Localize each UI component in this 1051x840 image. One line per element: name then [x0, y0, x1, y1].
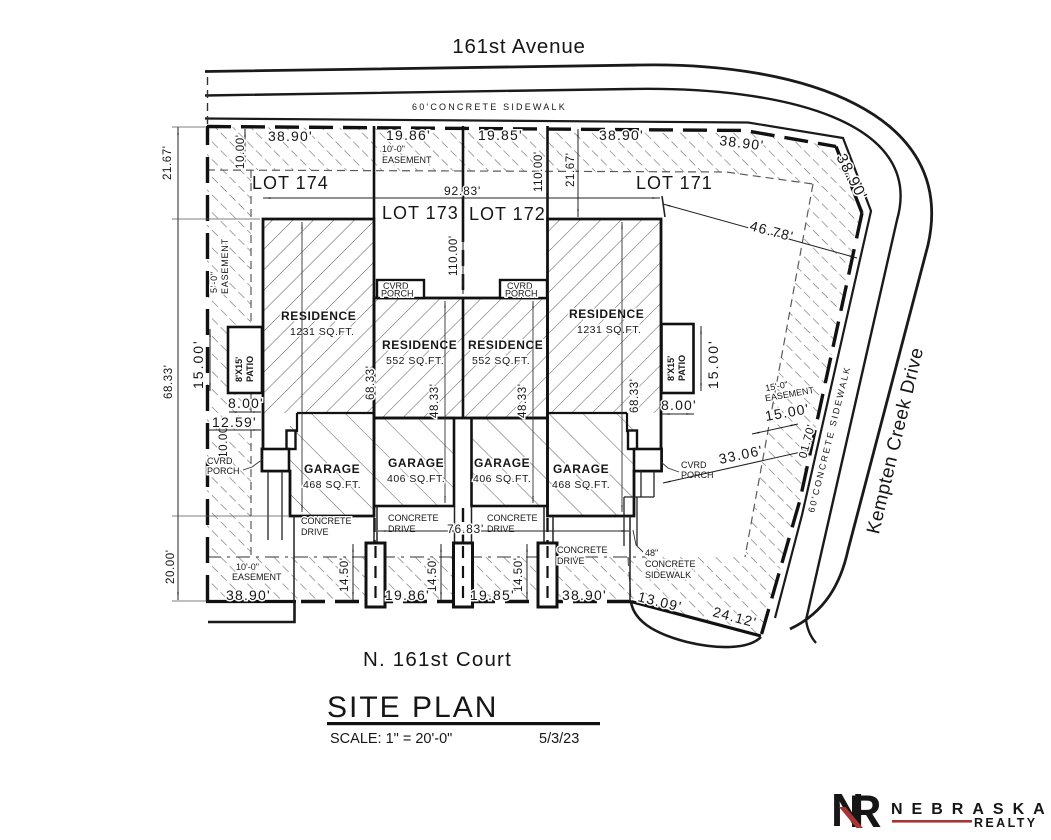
svg-text:PORCH: PORCH [381, 289, 414, 299]
svg-text:48.33': 48.33' [429, 383, 441, 418]
svg-text:CVRD: CVRD [681, 460, 707, 470]
svg-text:5'-0": 5'-0" [209, 271, 219, 293]
svg-text:LOT 174: LOT 174 [252, 173, 329, 193]
svg-text:552 SQ.FT.: 552 SQ.FT. [386, 355, 444, 367]
svg-text:468 SQ.FT.: 468 SQ.FT. [303, 479, 361, 491]
svg-text:R: R [849, 786, 882, 837]
svg-text:19.85': 19.85' [470, 587, 515, 603]
svg-text:SITE PLAN: SITE PLAN [327, 691, 498, 724]
svg-text:DRIVE: DRIVE [388, 524, 416, 534]
svg-text:92.83': 92.83' [444, 184, 481, 198]
svg-text:48.33': 48.33' [517, 383, 529, 418]
svg-text:10'-0": 10'-0" [236, 562, 259, 572]
svg-text:RESIDENCE: RESIDENCE [281, 309, 356, 323]
svg-text:38.90': 38.90' [226, 587, 271, 603]
svg-text:PATIO: PATIO [677, 355, 687, 381]
svg-text:1231 SQ.FT.: 1231 SQ.FT. [577, 324, 641, 336]
svg-text:REALTY: REALTY [974, 816, 1037, 830]
svg-text:EASEMENT: EASEMENT [232, 572, 282, 582]
svg-text:552 SQ.FT.: 552 SQ.FT. [472, 355, 530, 367]
svg-text:CONCRETE: CONCRETE [301, 516, 352, 526]
svg-text:GARAGE: GARAGE [304, 462, 360, 476]
svg-text:38.90': 38.90' [599, 127, 644, 143]
svg-text:10'-0": 10'-0" [382, 144, 405, 154]
svg-text:SIDEWALK: SIDEWALK [645, 570, 691, 580]
svg-text:19.85': 19.85' [478, 127, 523, 143]
svg-text:CVRD: CVRD [207, 456, 233, 466]
svg-text:N. 161st Court: N. 161st Court [363, 648, 512, 671]
svg-text:EASEMENT: EASEMENT [382, 155, 432, 165]
svg-text:GARAGE: GARAGE [553, 462, 609, 476]
svg-text:110.00': 110.00' [533, 151, 545, 192]
svg-text:21.67': 21.67' [565, 152, 577, 187]
svg-text:8.00': 8.00' [228, 395, 264, 411]
svg-text:15.00': 15.00' [705, 339, 721, 389]
svg-text:48": 48" [645, 548, 658, 558]
svg-text:68.33': 68.33' [629, 378, 641, 413]
svg-text:DRIVE: DRIVE [487, 524, 515, 534]
svg-text:38.90': 38.90' [562, 587, 607, 603]
svg-text:5/3/23: 5/3/23 [539, 731, 579, 747]
svg-text:RESIDENCE: RESIDENCE [468, 338, 543, 352]
svg-text:19.86': 19.86' [385, 587, 430, 603]
svg-text:10.00': 10.00' [235, 134, 247, 169]
svg-text:DRIVE: DRIVE [301, 527, 329, 537]
svg-text:60'CONCRETE SIDEWALK: 60'CONCRETE SIDEWALK [412, 102, 567, 112]
svg-text:RESIDENCE: RESIDENCE [382, 338, 457, 352]
svg-text:406 SQ.FT.: 406 SQ.FT. [387, 473, 445, 485]
svg-text:RESIDENCE: RESIDENCE [569, 307, 644, 321]
svg-text:15.00': 15.00' [190, 339, 206, 389]
svg-text:110.00': 110.00' [448, 235, 460, 276]
svg-text:8.00': 8.00' [661, 397, 697, 413]
svg-text:EASEMENT: EASEMENT [220, 238, 230, 294]
svg-text:CONCRETE: CONCRETE [487, 513, 538, 523]
svg-text:8'X15': 8'X15' [666, 356, 676, 381]
svg-text:68.33': 68.33' [365, 365, 377, 400]
svg-text:406 SQ.FT.: 406 SQ.FT. [473, 473, 531, 485]
svg-text:161st Avenue: 161st Avenue [452, 35, 585, 58]
svg-text:GARAGE: GARAGE [474, 456, 530, 470]
svg-text:PORCH: PORCH [207, 466, 240, 476]
svg-text:LOT 171: LOT 171 [636, 173, 713, 193]
svg-text:SCALE: 1" = 20'-0": SCALE: 1" = 20'-0" [330, 731, 452, 747]
svg-text:38.90': 38.90' [268, 128, 313, 144]
svg-text:68.33': 68.33' [163, 364, 175, 399]
svg-text:1231 SQ.FT.: 1231 SQ.FT. [290, 326, 354, 338]
svg-text:20.00': 20.00' [165, 549, 177, 584]
svg-text:12.59': 12.59' [212, 414, 257, 430]
svg-text:DRIVE: DRIVE [557, 556, 585, 566]
svg-text:14.50': 14.50' [339, 557, 351, 592]
svg-text:468 SQ.FT.: 468 SQ.FT. [552, 479, 610, 491]
svg-text:CONCRETE: CONCRETE [645, 559, 696, 569]
svg-text:CONCRETE: CONCRETE [388, 513, 439, 523]
svg-text:LOT 172: LOT 172 [469, 204, 546, 224]
svg-text:PATIO: PATIO [245, 356, 255, 382]
svg-text:21.67': 21.67' [162, 145, 174, 180]
svg-text:19.86': 19.86' [386, 127, 431, 143]
svg-text:8'X15': 8'X15' [234, 357, 244, 382]
svg-text:PORCH: PORCH [505, 289, 538, 299]
svg-text:GARAGE: GARAGE [388, 456, 444, 470]
svg-text:76.83': 76.83' [447, 522, 484, 536]
svg-text:LOT 173: LOT 173 [382, 203, 459, 223]
svg-text:CONCRETE: CONCRETE [557, 545, 608, 555]
